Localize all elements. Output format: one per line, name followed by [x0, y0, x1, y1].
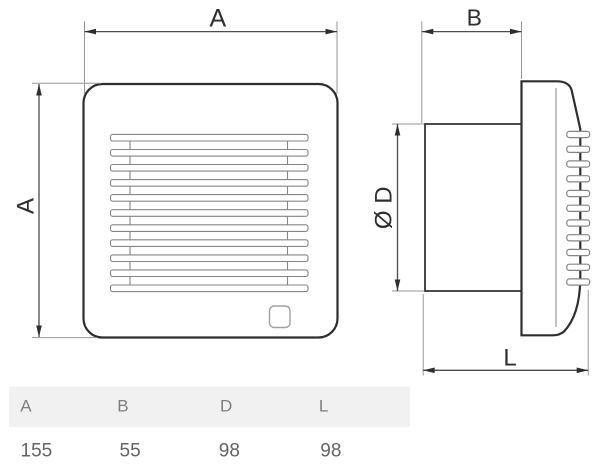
svg-text:98: 98: [320, 441, 341, 462]
svg-text:98: 98: [219, 441, 240, 462]
svg-text:155: 155: [21, 441, 53, 462]
svg-text:55: 55: [120, 441, 141, 462]
svg-text:D: D: [220, 397, 232, 416]
svg-text:L: L: [503, 345, 516, 372]
svg-text:A: A: [20, 397, 32, 416]
svg-text:L: L: [319, 397, 328, 416]
svg-text:A: A: [209, 4, 226, 32]
svg-text:Ø D: Ø D: [370, 186, 397, 229]
svg-text:B: B: [467, 5, 482, 31]
svg-text:B: B: [117, 397, 128, 416]
svg-text:A: A: [13, 198, 40, 214]
